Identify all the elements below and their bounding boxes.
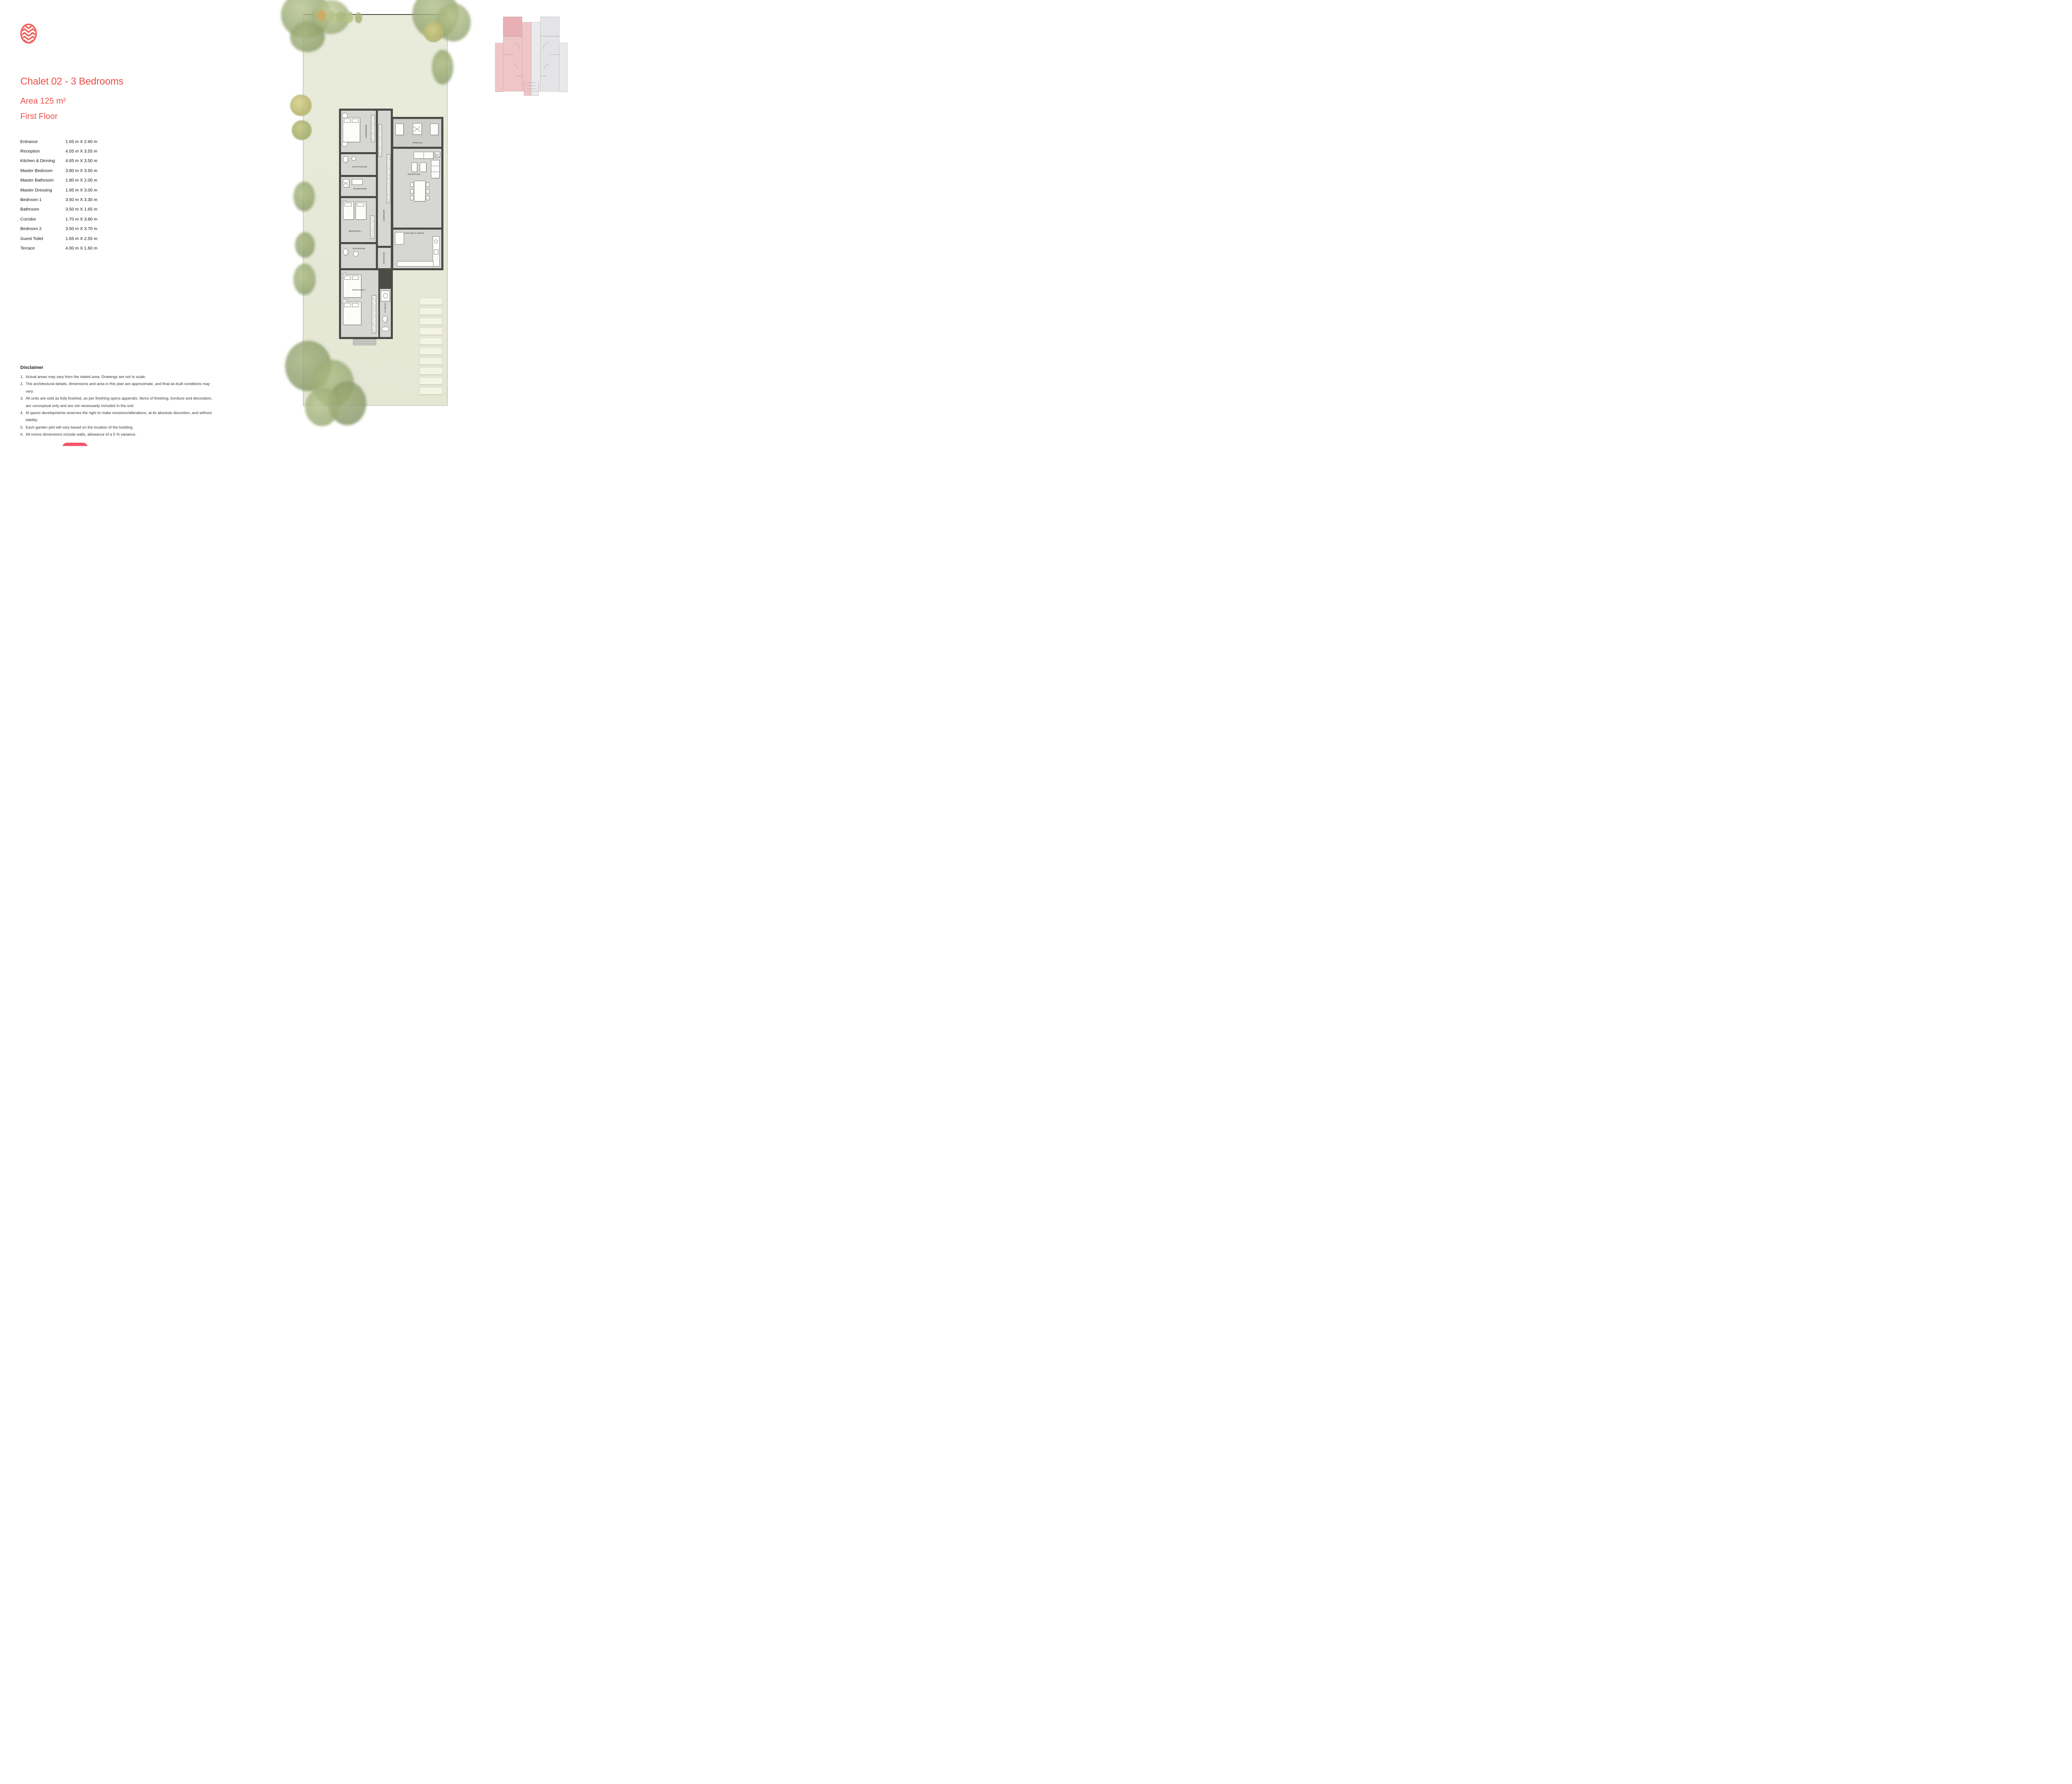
disclaimer-item: 6. All rooms dimensions include walls, a…: [20, 431, 215, 438]
dining-table-icon: [414, 181, 426, 201]
dining-chair-icon: [426, 189, 429, 194]
dining-chair-icon: [410, 196, 414, 200]
disclaimer-item-number: 1.: [20, 373, 26, 381]
wardrobe-icon: [372, 295, 376, 333]
tree-icon: [290, 22, 325, 52]
kitchen-counter-icon: [397, 261, 433, 267]
pillow-icon: [352, 303, 359, 307]
tree-icon: [292, 120, 312, 140]
dresser-icon: [352, 179, 363, 185]
sectional-sofa-icon: [431, 160, 440, 178]
room-label: CORRIDOR: [383, 210, 385, 221]
disclaimer-heading: Disclaimer: [20, 365, 44, 370]
pillow-icon: [344, 303, 351, 307]
toilet-icon: [382, 316, 387, 322]
zigzag-oval-logo-icon: [20, 23, 37, 44]
table-row: Bedroom 1 3.50 m X 3.30 m: [20, 195, 116, 204]
table-row: Master Bathroom 1.80 m X 2.00 m: [20, 176, 116, 185]
room-name: Terrace: [20, 246, 65, 251]
room-name: Master Bedroom: [20, 168, 65, 173]
pillow-icon: [344, 276, 351, 280]
room-label: BEDROOM 2: [352, 289, 365, 291]
disclaimer-item-number: 2.: [20, 381, 26, 395]
wardrobe-icon: [371, 115, 375, 142]
stepping-stone: [419, 337, 443, 345]
wardrobe-icon: [387, 154, 390, 203]
dining-chair-icon: [410, 182, 414, 187]
stepping-stone: [419, 377, 443, 385]
room-name: Kitchen & Dinning: [20, 158, 65, 163]
room-name: Corridor: [20, 217, 65, 222]
tree-icon: [346, 12, 353, 23]
dining-chair-icon: [426, 196, 429, 200]
pillow-icon: [357, 203, 364, 206]
room-size: 3.50 m X 3.70 m: [65, 226, 115, 231]
table-row: Guest Toilet 1.65 m X 2.55 m: [20, 234, 116, 243]
sofa-divider-line: [424, 152, 424, 158]
table-row: Bathroom 3.50 m X 1.65 m: [20, 205, 116, 214]
room-size: 3.50 m X 3.30 m: [65, 197, 115, 202]
disclaimer-item-text: The architectural details, dimensions an…: [26, 381, 215, 395]
disclaimer-item-number: 4.: [20, 410, 26, 424]
sink-icon: [382, 327, 389, 331]
room-label: M.DRESSING: [353, 188, 367, 190]
stove-icon: [434, 250, 438, 255]
room-label: KITCHEN & DINING: [404, 233, 424, 235]
disclaimer-item-text: Each garden plot will vary based on the …: [26, 424, 133, 431]
room-label: TERRACE: [412, 142, 423, 144]
tree-icon: [355, 12, 362, 23]
stepping-stone: [419, 347, 443, 355]
cabinet-icon: [395, 232, 404, 245]
room-size: 1.65 m X 2.55 m: [65, 236, 115, 241]
room-name: Master Dressing: [20, 188, 65, 193]
disclaimer-item-number: 5.: [20, 424, 26, 431]
room-size: 1.80 m X 2.00 m: [65, 178, 115, 183]
tree-icon: [317, 10, 326, 22]
dining-chair-icon: [426, 182, 429, 187]
toilet-icon: [343, 249, 348, 255]
room-label: ENTRANCE: [383, 252, 385, 264]
disclaimer-item: 1. Actual areas may vary from the stated…: [20, 373, 215, 381]
pillow-icon: [352, 119, 358, 123]
side-table-icon: [413, 123, 422, 135]
side-table-icon: [435, 152, 440, 157]
disclaimer-item-text: Al qamzi developments reserves the right…: [26, 410, 215, 424]
tree-icon: [305, 388, 339, 426]
room-size: 1.70 m X 3.80 m: [65, 217, 115, 222]
sink-icon: [351, 156, 356, 161]
stepping-stone: [419, 298, 443, 305]
stepping-stone: [419, 367, 443, 375]
floorplan-page: Chalet 02 - 3 Bedrooms Area 125 m² First…: [0, 0, 577, 446]
toilet-icon: [343, 156, 348, 163]
stepping-stone: [419, 327, 443, 335]
floor-label: First Floor: [20, 112, 58, 121]
armchair-icon: [430, 124, 438, 135]
tree-icon: [327, 11, 335, 22]
dimensions-table: Entrance 1.65 m X 2.60 m Reception 4.05 …: [20, 137, 116, 253]
disclaimer-item: 2. The architectural details, dimensions…: [20, 381, 215, 395]
stepping-stone: [419, 308, 443, 315]
area-label: Area 125 m²: [20, 97, 66, 106]
dining-chair-icon: [410, 189, 414, 194]
room-name: Guest Toilet: [20, 236, 65, 241]
disclaimer-item-text: All units are sold as fully finished, as…: [26, 395, 212, 410]
room-label: RECEPTION: [408, 174, 420, 176]
tree-icon: [293, 182, 315, 211]
wardrobe-icon: [378, 124, 382, 157]
armchair-icon: [395, 124, 404, 135]
room-name: Reception: [20, 149, 65, 154]
tree-icon: [290, 95, 312, 116]
room-size: 4.05 m X 3.55 m: [65, 149, 115, 154]
room-label: BATHROOM: [353, 248, 365, 250]
key-plan-diagram: [494, 15, 568, 96]
room-name: Bedroom 1: [20, 197, 65, 202]
room-size: 4.00 m X 1.60 m: [65, 246, 115, 251]
table-row: Entrance 1.65 m X 2.60 m: [20, 137, 116, 146]
sofa-divider-line: [431, 172, 439, 172]
table-row: Kitchen & Dinning 4.65 m X 3.50 m: [20, 156, 116, 166]
dressing-closet-icon: [343, 179, 349, 187]
table-row: Master Dressing 1.95 m X 3.00 m: [20, 185, 116, 195]
sofa-divider-line: [431, 166, 439, 166]
table-row: Corridor 1.70 m X 3.80 m: [20, 214, 116, 224]
room-label: M.BATHROOM: [352, 166, 367, 168]
table-row: Master Bedroom 3.80 m X 3.50 m: [20, 166, 116, 175]
armchair-icon: [420, 162, 426, 172]
disclaimer-item-number: 6.: [20, 431, 26, 438]
tree-icon: [336, 12, 344, 23]
room-name: Master Bathroom: [20, 178, 65, 183]
room-size: 1.95 m X 3.00 m: [65, 188, 115, 193]
shower-drain-icon: [383, 293, 388, 298]
kitchen-sink-icon: [434, 240, 438, 243]
room-label: G.TOILET: [385, 303, 387, 313]
room-size: 3.80 m X 3.50 m: [65, 168, 115, 173]
pillow-icon: [344, 203, 352, 206]
tree-icon: [295, 232, 315, 258]
room-size: 4.65 m X 3.50 m: [65, 158, 115, 163]
sink-icon: [353, 251, 358, 257]
disclaimer-item-text: Actual areas may vary from the stated ar…: [26, 373, 146, 381]
stepping-stone: [419, 387, 443, 395]
room-size: 1.65 m X 2.60 m: [65, 139, 115, 144]
room-label: BEDROOM 1: [349, 230, 361, 233]
wardrobe-icon: [370, 216, 375, 239]
pillow-icon: [352, 276, 359, 280]
room-name: Entrance: [20, 139, 65, 144]
table-row: Bedroom 2 3.50 m X 3.70 m: [20, 224, 116, 234]
pillow-icon: [344, 119, 351, 123]
table-row: Reception 4.05 m X 3.55 m: [20, 146, 116, 156]
disclaimer-item: 4. Al qamzi developments reserves the ri…: [20, 410, 215, 424]
disclaimer-item: 5. Each garden plot will vary based on t…: [20, 424, 215, 431]
stepping-stone: [419, 357, 443, 365]
tree-icon: [293, 264, 316, 295]
room-label: M.BEDROOM: [366, 125, 368, 138]
entrance-steps: [353, 339, 376, 345]
disclaimer-item-text: All rooms dimensions include walls, allo…: [26, 431, 136, 438]
room-name: Bedroom 2: [20, 226, 65, 231]
armchair-icon: [411, 162, 417, 172]
tree-icon: [424, 22, 443, 42]
disclaimer-list: 1. Actual areas may vary from the stated…: [20, 373, 215, 439]
room-name: Bathroom: [20, 207, 65, 212]
room-size: 3.50 m X 1.65 m: [65, 207, 115, 212]
page-title: Chalet 02 - 3 Bedrooms: [20, 76, 123, 87]
disclaimer-item: 3. All units are sold as fully finished,…: [20, 395, 215, 410]
action-button[interactable]: [62, 443, 88, 446]
stepping-stone: [419, 318, 443, 325]
disclaimer-item-number: 3.: [20, 395, 26, 410]
table-row: Terrace 4.00 m X 1.60 m: [20, 243, 116, 253]
tree-icon: [432, 50, 453, 85]
